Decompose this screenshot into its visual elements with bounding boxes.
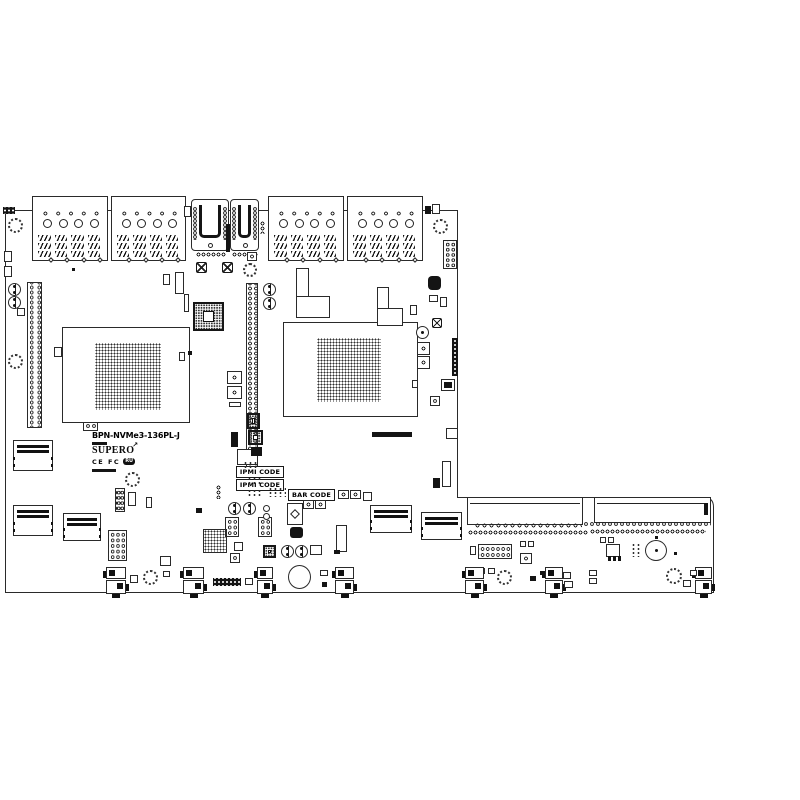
fan-header xyxy=(545,567,563,598)
smd-component xyxy=(425,206,431,214)
pin-header-box xyxy=(478,544,512,559)
smd-component xyxy=(618,556,621,561)
smd-component xyxy=(372,432,412,437)
fan-pattern-component xyxy=(125,472,140,487)
drive-connector-block xyxy=(111,196,186,261)
smd-component xyxy=(334,550,340,554)
pin-header-box xyxy=(443,240,457,269)
pin-row xyxy=(196,252,226,257)
led-component xyxy=(520,553,532,564)
component-outline xyxy=(589,570,597,576)
pin-header-box xyxy=(115,488,125,512)
fiducial-mark xyxy=(228,502,241,515)
ic-chip xyxy=(193,302,224,331)
component-outline xyxy=(429,295,438,302)
led-component xyxy=(430,396,440,406)
smd-component xyxy=(196,508,202,513)
component-outline xyxy=(163,274,170,285)
drive-connector-block xyxy=(32,196,108,261)
pin-header-box xyxy=(108,530,127,561)
smd-component xyxy=(608,556,611,561)
component-outline xyxy=(683,580,691,587)
component-outline xyxy=(234,542,243,551)
component-outline xyxy=(296,296,330,318)
pcb-board: IPMI CODEIPMI CODEBAR CODE BPN-NVMe3-136… xyxy=(0,0,800,800)
designed-text-bar xyxy=(92,469,116,472)
led-component xyxy=(417,356,430,369)
smd-component xyxy=(226,224,230,252)
component-outline xyxy=(229,402,241,407)
component-outline xyxy=(446,428,458,439)
smd-component xyxy=(188,351,192,355)
ce-fc-marks: CE FC xyxy=(92,458,120,466)
component-outline xyxy=(130,575,138,583)
pin-grid xyxy=(268,487,286,497)
fan-header xyxy=(695,567,712,598)
led-component xyxy=(350,490,361,499)
smd-component xyxy=(444,382,452,388)
edge-connector xyxy=(594,497,711,523)
fan-header xyxy=(257,567,273,598)
pin-row xyxy=(590,529,706,534)
ic-chip-x xyxy=(432,318,442,328)
fiducial-mark xyxy=(295,545,308,558)
ic-chip-x xyxy=(222,262,233,273)
smd-component xyxy=(428,276,441,290)
pin-header-box xyxy=(225,517,239,537)
fan-header xyxy=(465,567,484,598)
rocket-icon: ↗ xyxy=(132,441,138,449)
minisas-connector xyxy=(191,199,229,251)
fiducial-mark xyxy=(8,283,21,296)
fiducial-mark xyxy=(263,297,276,310)
jumper-block xyxy=(287,503,303,525)
component-outline xyxy=(564,581,573,588)
bga-chip-small xyxy=(203,529,227,553)
pin-header xyxy=(27,282,42,428)
led-component xyxy=(303,500,314,509)
fan-header xyxy=(106,567,126,598)
smd-component xyxy=(674,552,677,555)
capacitor xyxy=(416,326,429,339)
smd-component xyxy=(655,536,658,539)
led-component xyxy=(227,371,242,384)
fan-header xyxy=(183,567,204,598)
circle-component xyxy=(263,513,270,520)
pin-column xyxy=(216,485,221,499)
fan-header xyxy=(335,567,354,598)
smd-component xyxy=(290,527,303,538)
drive-connector-block xyxy=(268,196,344,261)
component-outline xyxy=(179,352,185,361)
fan-pattern-component xyxy=(497,570,512,585)
component-outline xyxy=(54,347,62,357)
component-outline xyxy=(184,294,189,312)
pin-strip xyxy=(3,207,15,214)
component-outline xyxy=(442,461,451,487)
pin-row xyxy=(583,521,711,527)
brand-text: SUPER xyxy=(92,445,126,456)
drive-connector-block xyxy=(347,196,423,261)
led-component xyxy=(230,553,240,563)
led-component xyxy=(227,386,242,399)
fiducial-mark xyxy=(281,545,294,558)
pin-strip xyxy=(213,578,241,586)
bga-chip xyxy=(95,343,161,410)
circle-component xyxy=(288,565,311,589)
component-outline xyxy=(128,492,136,506)
pin-strip xyxy=(452,338,458,376)
smd-component xyxy=(530,576,536,581)
minisas-connector xyxy=(230,199,259,251)
ic-chip xyxy=(248,430,263,445)
smd-component xyxy=(231,432,238,447)
component-outline xyxy=(520,541,526,547)
pin-grid xyxy=(243,461,258,468)
component-outline xyxy=(4,251,12,262)
component-outline xyxy=(160,556,171,566)
component-outline xyxy=(377,308,403,326)
component-outline xyxy=(320,570,328,576)
led-component xyxy=(315,500,326,509)
pin-row xyxy=(474,522,582,529)
cert-marks: CE FCRU xyxy=(92,458,135,466)
fan-pattern-component xyxy=(666,568,682,584)
component-outline xyxy=(600,537,606,543)
circle-component xyxy=(263,505,270,512)
led-component xyxy=(417,342,430,355)
component-outline xyxy=(410,305,417,315)
smd-component xyxy=(540,571,545,575)
component-outline xyxy=(184,206,191,217)
fan-pattern-component xyxy=(8,218,23,233)
component-outline xyxy=(488,568,495,574)
fiducial-mark xyxy=(8,296,21,309)
component-outline xyxy=(146,497,152,508)
pin-header-box xyxy=(258,517,272,537)
ic-chip xyxy=(263,545,276,558)
component-outline xyxy=(4,266,12,277)
ic-chip-x xyxy=(196,262,207,273)
component-outline xyxy=(470,546,476,555)
pin-row xyxy=(468,530,588,535)
component-outline xyxy=(336,525,347,552)
pin-grid xyxy=(631,543,641,557)
component-outline xyxy=(363,492,372,501)
power-connector xyxy=(13,440,53,471)
component-outline xyxy=(412,380,418,388)
model-text: BPN-NVMe3-136PL-J xyxy=(92,431,180,440)
component-outline xyxy=(589,578,597,584)
power-connector xyxy=(421,512,462,540)
component-outline xyxy=(17,308,25,316)
smd-component xyxy=(613,556,616,561)
fiducial-mark xyxy=(263,283,276,296)
component-outline xyxy=(310,545,322,555)
power-connector xyxy=(13,505,53,536)
component-outline xyxy=(528,541,534,547)
smd-component xyxy=(704,503,708,515)
power-connector xyxy=(370,505,412,533)
pin-grid xyxy=(247,477,263,485)
fan-pattern-component xyxy=(433,219,448,234)
smd-component xyxy=(433,478,440,488)
brand-o: O↗ xyxy=(126,445,134,456)
component-outline xyxy=(245,578,253,585)
fan-pattern-component xyxy=(243,263,257,277)
pin-column xyxy=(260,221,265,234)
edge-connector xyxy=(467,497,583,525)
capacitor xyxy=(645,540,667,561)
fan-pattern-component xyxy=(8,354,23,369)
smd-component xyxy=(72,268,75,271)
component-outline xyxy=(432,204,440,214)
pin-grid xyxy=(247,489,263,497)
bga-chip xyxy=(317,338,381,402)
ic-chip xyxy=(247,413,260,429)
ul-mark: RU xyxy=(123,458,135,465)
brand-logo: SUPERO↗ xyxy=(92,445,134,456)
component-outline xyxy=(563,572,571,579)
led-component xyxy=(338,490,349,499)
page: { "board": { "model": "BPN-NVMe3-136PL-J… xyxy=(0,0,800,800)
fan-pattern-component xyxy=(143,570,158,585)
component-outline xyxy=(296,268,309,298)
component-outline xyxy=(175,272,184,294)
component-outline xyxy=(163,571,170,577)
smd-component xyxy=(322,582,327,587)
component-outline xyxy=(608,537,614,543)
component-outline xyxy=(440,297,447,307)
power-connector xyxy=(63,513,101,541)
led-component xyxy=(247,252,257,261)
smd-component xyxy=(251,447,262,456)
fiducial-mark xyxy=(243,502,256,515)
component-outline xyxy=(690,570,697,576)
